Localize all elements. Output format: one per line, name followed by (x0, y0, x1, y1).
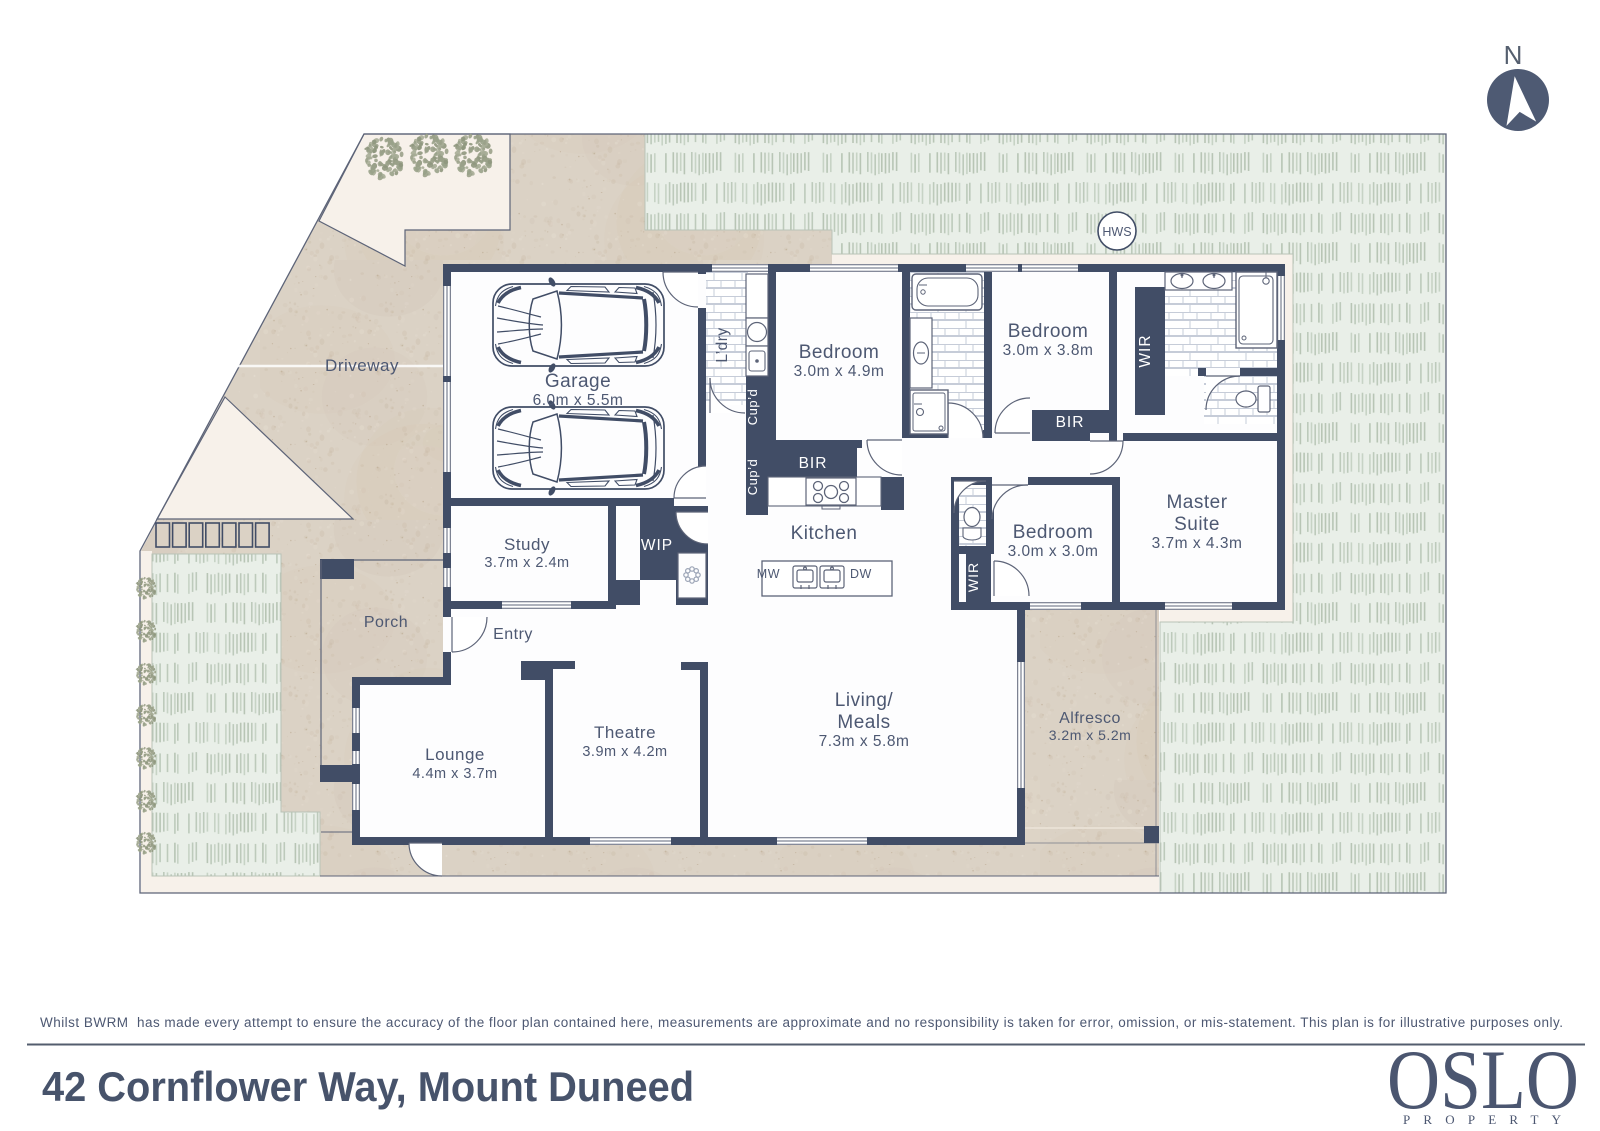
svg-text:6.0m x 5.5m: 6.0m x 5.5m (533, 392, 624, 409)
svg-text:Entry: Entry (493, 626, 533, 643)
svg-text:Study: Study (504, 535, 550, 554)
svg-text:Alfresco: Alfresco (1059, 710, 1121, 727)
svg-text:Driveway: Driveway (325, 356, 399, 375)
svg-text:Cup’d: Cup’d (745, 459, 760, 495)
svg-text:MW: MW (757, 567, 780, 581)
svg-text:3.0m x 4.9m: 3.0m x 4.9m (794, 363, 885, 380)
svg-text:OSLO: OSLO (1387, 1033, 1579, 1127)
svg-text:Kitchen: Kitchen (791, 523, 858, 544)
svg-text:BIR: BIR (799, 455, 828, 472)
svg-text:Cup’d: Cup’d (745, 389, 760, 425)
svg-text:WIP: WIP (641, 537, 673, 554)
svg-text:Lounge: Lounge (425, 745, 485, 764)
svg-text:3.9m x 4.2m: 3.9m x 4.2m (582, 744, 667, 760)
svg-text:Master: Master (1166, 492, 1227, 513)
svg-text:3.0m x 3.0m: 3.0m x 3.0m (1008, 543, 1099, 560)
svg-text:Bedroom: Bedroom (799, 342, 880, 363)
svg-text:N: N (1504, 40, 1523, 70)
svg-text:3.2m x 5.2m: 3.2m x 5.2m (1049, 727, 1132, 743)
svg-text:Suite: Suite (1174, 514, 1220, 535)
svg-text:Whilst BWRM has made every at: Whilst BWRM has made every attempt to en… (40, 1015, 1563, 1030)
svg-text:3.7m x 2.4m: 3.7m x 2.4m (484, 555, 569, 571)
svg-text:BIR: BIR (1056, 414, 1085, 431)
svg-text:Bedroom: Bedroom (1013, 522, 1094, 543)
svg-text:WIR: WIR (965, 562, 981, 592)
svg-text:3.7m x 4.3m: 3.7m x 4.3m (1152, 535, 1243, 552)
svg-text:Porch: Porch (364, 614, 408, 631)
svg-text:Theatre: Theatre (594, 723, 656, 742)
svg-text:Bedroom: Bedroom (1008, 321, 1089, 342)
svg-text:Garage: Garage (545, 371, 611, 392)
svg-text:WIR: WIR (1137, 334, 1154, 367)
svg-text:3.0m x 3.8m: 3.0m x 3.8m (1003, 342, 1094, 359)
svg-text:Meals: Meals (837, 712, 890, 733)
svg-text:Living/: Living/ (835, 690, 894, 711)
svg-text:42 Cornflower Way, Mount Dunee: 42 Cornflower Way, Mount Duneed (42, 1063, 694, 1110)
svg-text:L’dry: L’dry (714, 327, 731, 362)
svg-text:7.3m x 5.8m: 7.3m x 5.8m (819, 733, 910, 750)
svg-text:HWS: HWS (1102, 225, 1131, 239)
svg-text:4.4m x 3.7m: 4.4m x 3.7m (412, 766, 497, 782)
svg-text:DW: DW (850, 567, 872, 581)
